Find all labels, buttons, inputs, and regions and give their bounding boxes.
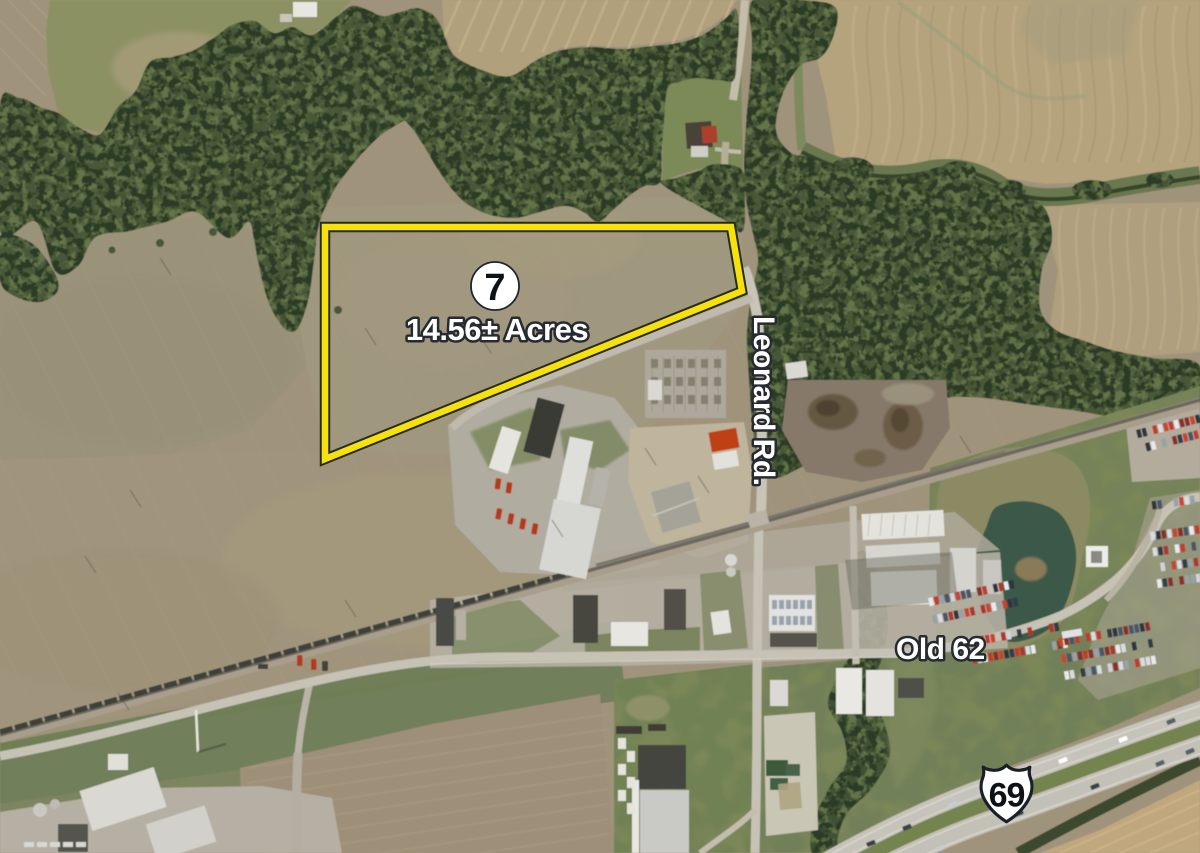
svg-text:Old 62: Old 62 <box>896 633 985 666</box>
svg-text:7: 7 <box>484 267 505 309</box>
svg-text:69: 69 <box>989 777 1025 815</box>
svg-text:Leonard Rd.: Leonard Rd. <box>747 316 780 486</box>
svg-text:14.56± Acres: 14.56± Acres <box>406 312 588 347</box>
